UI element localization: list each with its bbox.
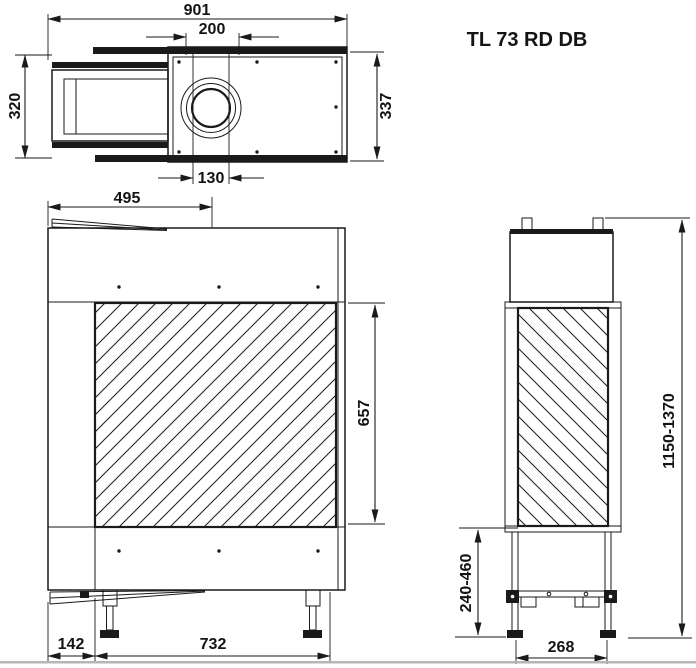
side-body-hatched	[518, 308, 608, 526]
plan-slide-mechanism	[52, 62, 168, 148]
dim-right-depth-label: 337	[378, 93, 395, 120]
bottom-divider	[0, 661, 696, 664]
top-view: 901 200 130 320 33	[7, 2, 395, 187]
front-glass-hatched	[95, 303, 336, 527]
dim-base-width-label: 732	[200, 636, 227, 653]
front-top-door-wedge	[52, 219, 167, 231]
dim-flue-inner-width: 130	[158, 52, 264, 187]
dim-flue-center-offset: 495	[48, 190, 212, 227]
dim-left-depth-label: 320	[7, 93, 24, 120]
plan-top-plate	[93, 47, 347, 54]
dim-left-depth: 320	[7, 55, 52, 158]
dim-flue-inner-width-label: 130	[198, 170, 225, 187]
fireplace-dimension-drawing: 901 200 130 320 33	[0, 0, 696, 668]
dim-base-widths: 142 732	[48, 592, 330, 661]
dim-flue-collar-width-label: 200	[199, 21, 226, 38]
plan-bottom-plate	[95, 155, 347, 162]
side-legs	[507, 532, 616, 638]
dim-glass-height: 657	[348, 303, 385, 524]
side-top-plate	[510, 229, 613, 234]
technical-drawing-page: 901 200 130 320 33	[0, 0, 696, 668]
model-title: TL 73 RD DB	[467, 29, 588, 51]
front-view: 495 657 142 732	[48, 190, 385, 661]
front-right-leg	[303, 590, 322, 638]
dim-glass-height-label: 657	[356, 400, 373, 427]
dim-foot-spacing-label: 268	[548, 639, 575, 656]
dim-overall-width-label: 901	[184, 2, 211, 19]
side-view: 240-460 1150-1370 268	[455, 218, 692, 664]
dim-right-depth: 337	[350, 52, 395, 161]
plan-screw-dots	[177, 60, 337, 153]
plan-body-outline	[168, 47, 347, 162]
dim-flue-center-offset-label: 495	[114, 190, 141, 207]
dim-foot-spacing: 268	[516, 639, 607, 664]
front-left-leg	[100, 590, 119, 638]
dim-total-height: 1150-1370	[605, 218, 692, 638]
dim-left-inset-label: 142	[58, 636, 85, 653]
flue-collar-circles	[181, 78, 241, 138]
front-bottom-door-wedge	[50, 591, 205, 605]
plan-body-inner-frame	[173, 57, 342, 157]
side-top-box	[510, 232, 613, 302]
dim-plinth-height: 240-460	[455, 528, 518, 637]
side-cross-member	[506, 590, 617, 607]
dim-plinth-height-label: 240-460	[458, 554, 475, 613]
dim-total-height-label: 1150-1370	[661, 393, 678, 469]
